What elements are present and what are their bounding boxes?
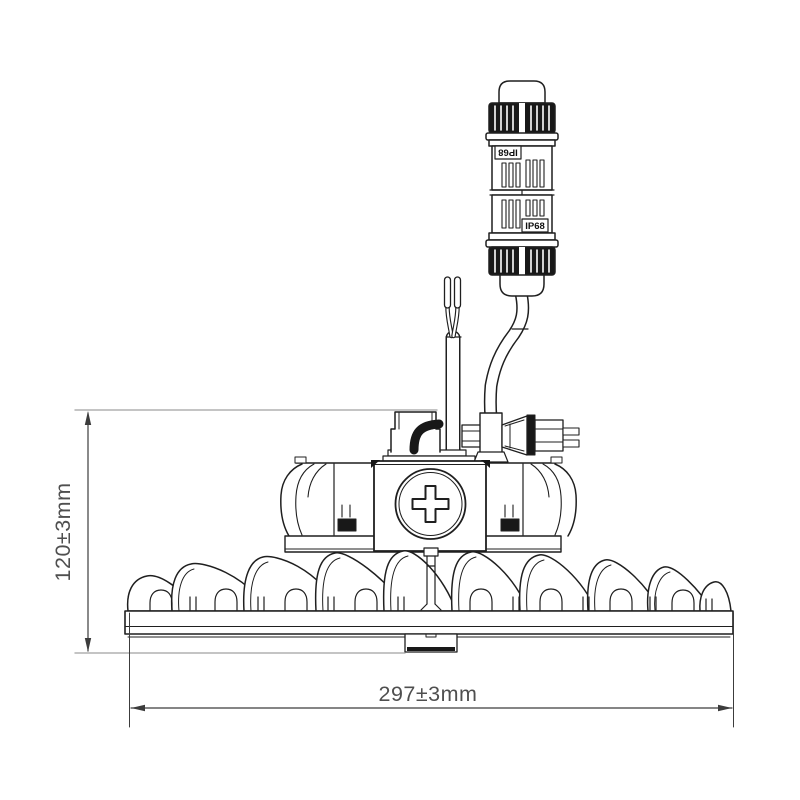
power-cable-right — [490, 293, 528, 418]
plug-body — [535, 420, 563, 451]
plug-contact — [563, 440, 579, 447]
cable-gland-clamp — [480, 413, 502, 457]
connector-flange — [486, 133, 558, 140]
heatsink-fins — [128, 548, 731, 611]
quick-connect-plug — [462, 413, 579, 462]
connector-bottom-cap — [500, 275, 544, 296]
housing-vent-right — [501, 505, 519, 531]
housing-left-shoulder — [281, 457, 334, 536]
plug-cone — [502, 416, 527, 455]
driver-housing — [281, 457, 576, 552]
arrow-down-icon — [85, 638, 91, 652]
input-wires — [445, 277, 462, 460]
width-dimension-label: 297±3mm — [379, 682, 478, 706]
housing-right-shoulder — [523, 457, 576, 536]
plug-contact — [563, 428, 579, 435]
arrow-right-icon — [718, 705, 732, 711]
lens-rim — [125, 611, 733, 637]
ip68-label-bottom-box: IP68 — [522, 219, 548, 232]
connector-top-cap — [499, 81, 545, 103]
arrow-left-icon — [131, 705, 145, 711]
dimension-drawing: IP68 IP68 — [0, 0, 800, 800]
drawing-canvas: IP68 IP68 — [0, 0, 800, 800]
inline-connector: IP68 IP68 — [486, 81, 558, 418]
wire-right — [454, 277, 461, 336]
ip68-label-top: IP68 — [498, 147, 518, 158]
wire-pin-terminal — [445, 277, 451, 308]
plug-lock-ring — [527, 415, 535, 455]
connector-knurled-nut-top — [489, 103, 555, 133]
arrow-up-icon — [85, 411, 91, 425]
ip68-label-top-box: IP68 — [495, 146, 521, 159]
mounting-bracket — [383, 412, 475, 463]
wire-left — [445, 277, 452, 336]
wire-pin-terminal — [455, 277, 461, 308]
connector-flange — [489, 233, 555, 240]
connector-flange — [486, 240, 558, 247]
connector-knurled-nut-bottom — [489, 247, 555, 275]
driver-box — [371, 460, 490, 551]
connector-flange — [489, 140, 555, 146]
bottom-tab — [405, 634, 457, 652]
housing-vent-left — [338, 505, 356, 531]
height-dimension-label: 120±3mm — [51, 483, 75, 582]
ip68-label-bottom: IP68 — [525, 221, 545, 232]
